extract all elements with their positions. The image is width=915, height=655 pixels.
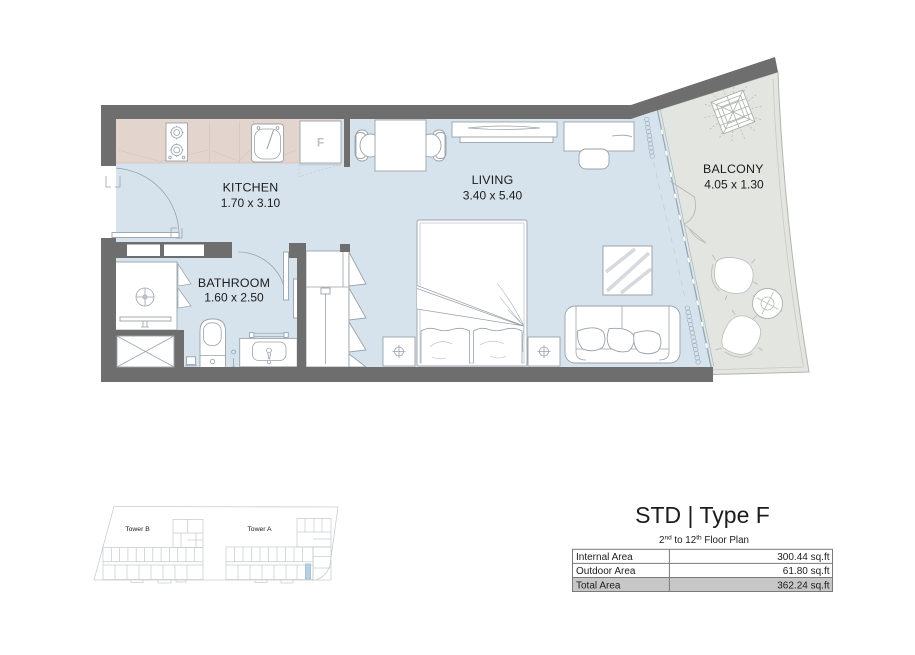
- svg-text:1.60 x 2.50: 1.60 x 2.50: [204, 291, 264, 305]
- svg-text:KITCHEN: KITCHEN: [223, 181, 279, 195]
- svg-text:61.80 sq.ft: 61.80 sq.ft: [783, 566, 830, 577]
- svg-text:BATHROOM: BATHROOM: [198, 276, 270, 290]
- svg-text:Tower B: Tower B: [125, 526, 150, 533]
- svg-text:Outdoor Area: Outdoor Area: [576, 566, 636, 577]
- svg-text:F: F: [317, 136, 324, 150]
- svg-text:LIVING: LIVING: [472, 173, 514, 187]
- svg-text:Total Area: Total Area: [576, 580, 621, 591]
- svg-text:Tower A: Tower A: [247, 526, 272, 533]
- svg-text:Internal Area: Internal Area: [576, 552, 633, 563]
- svg-text:2nd to 12th Floor Plan: 2nd to 12th Floor Plan: [659, 535, 749, 547]
- svg-text:300.44 sq.ft: 300.44 sq.ft: [777, 552, 829, 563]
- svg-text:4.05 x 1.30: 4.05 x 1.30: [704, 177, 764, 191]
- svg-text:STD | Type F: STD | Type F: [635, 502, 770, 528]
- svg-text:362.24 sq.ft: 362.24 sq.ft: [777, 580, 829, 591]
- svg-text:BALCONY: BALCONY: [703, 162, 764, 176]
- svg-text:1.70 x 3.10: 1.70 x 3.10: [221, 196, 281, 210]
- svg-text:3.40 x 5.40: 3.40 x 5.40: [463, 188, 523, 202]
